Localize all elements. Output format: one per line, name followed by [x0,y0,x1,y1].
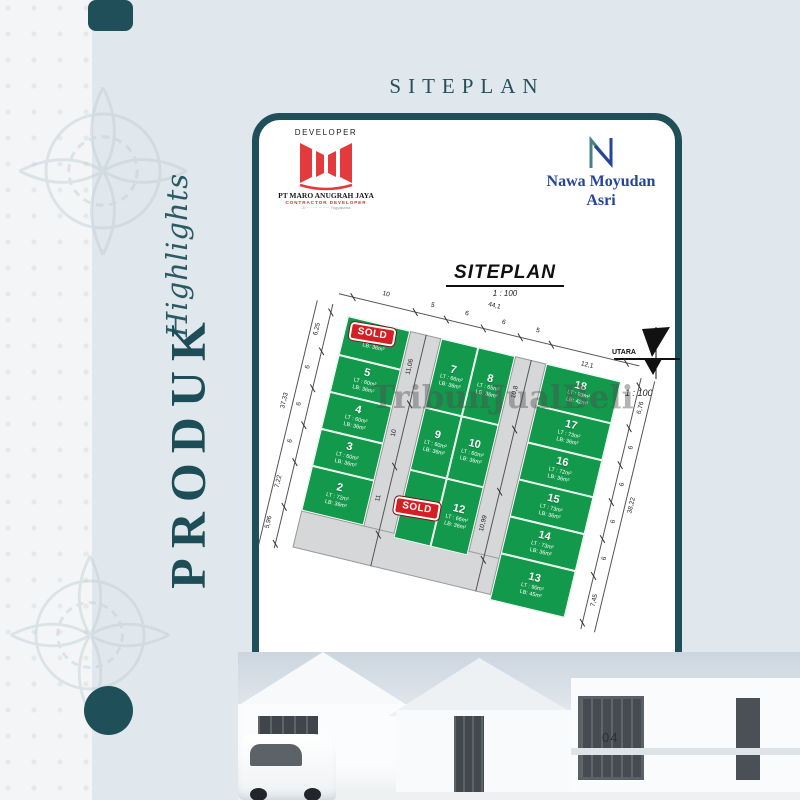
brand-name-line1: Nawa Moyudan [535,172,667,191]
dimension-label: 5,96 [264,515,274,529]
dimension-label: 6,25 [312,322,322,336]
house-parapet [571,748,800,755]
sold-badge: SOLD [348,322,396,347]
produk-label: PRODUK [151,311,226,591]
dimension-label: 37,33 [279,392,290,409]
dimension-label: 6 [610,519,618,524]
dimension-label: 10 [382,290,391,298]
page-number: 04 [602,730,618,745]
dimension-label: 6 [295,401,303,406]
dimension-label: 38,22 [626,497,637,514]
teal-accent-top [88,0,133,31]
car-wheel [250,788,267,800]
plan-scale: 1 : 100 [430,289,580,298]
dimension-label: 5 [535,327,540,335]
plan-title-block: SITEPLAN 1 : 100 [430,262,580,298]
developer-logo-icon [298,139,354,191]
dimension-label: 6 [618,482,626,487]
brand-block: Nawa Moyudan Asri [535,136,667,210]
dimension-label: 7,45 [590,593,600,607]
siteplan-card: DEVELOPER PT MARO ANUGRAH JAYA CONTRACTO… [252,113,682,681]
plan-grid: 6LB: 36m²SOLD5LT : 60m²LB: 36m²4LT : 60m… [291,316,621,618]
dimension-label: 6 [464,310,469,318]
developer-company: PT MARO ANUGRAH JAYA [265,191,387,200]
compass: UTARA [612,325,684,381]
dimension-label: 6 [627,445,635,450]
car-window [250,744,302,766]
plan-title: SITEPLAN [446,262,564,287]
watermark-text: TribunJualBeli [330,378,675,416]
brand-logo-icon [581,136,621,170]
developer-address: Jl. ················· Yogyakarta [265,205,387,210]
dimension-label: 44,1 [487,301,501,311]
developer-block: DEVELOPER PT MARO ANUGRAH JAYA CONTRACTO… [265,128,387,210]
page: Highlights PRODUK SITEPLAN DEVELOPER PT … [0,0,800,800]
dimension-label: 5 [430,302,435,310]
compass-label: UTARA [612,349,636,356]
dimension-label: 6 [601,556,609,561]
dimension-label: 6 [286,438,294,443]
car-wheel [304,788,321,800]
house-window [454,716,484,800]
sold-badge: SOLD [393,496,441,521]
dimension-label: 7,22 [274,474,284,488]
dimension-label: 12,1 [580,360,594,370]
house-window [736,698,760,780]
teal-accent-dot [84,686,133,735]
dimension-label: 6 [304,364,312,369]
dimension-label: 6 [501,319,506,327]
developer-label: DEVELOPER [265,128,387,137]
page-title: SITEPLAN [252,74,682,99]
house-render: 04 [238,652,800,800]
brand-name-line2: Asri [535,191,667,210]
